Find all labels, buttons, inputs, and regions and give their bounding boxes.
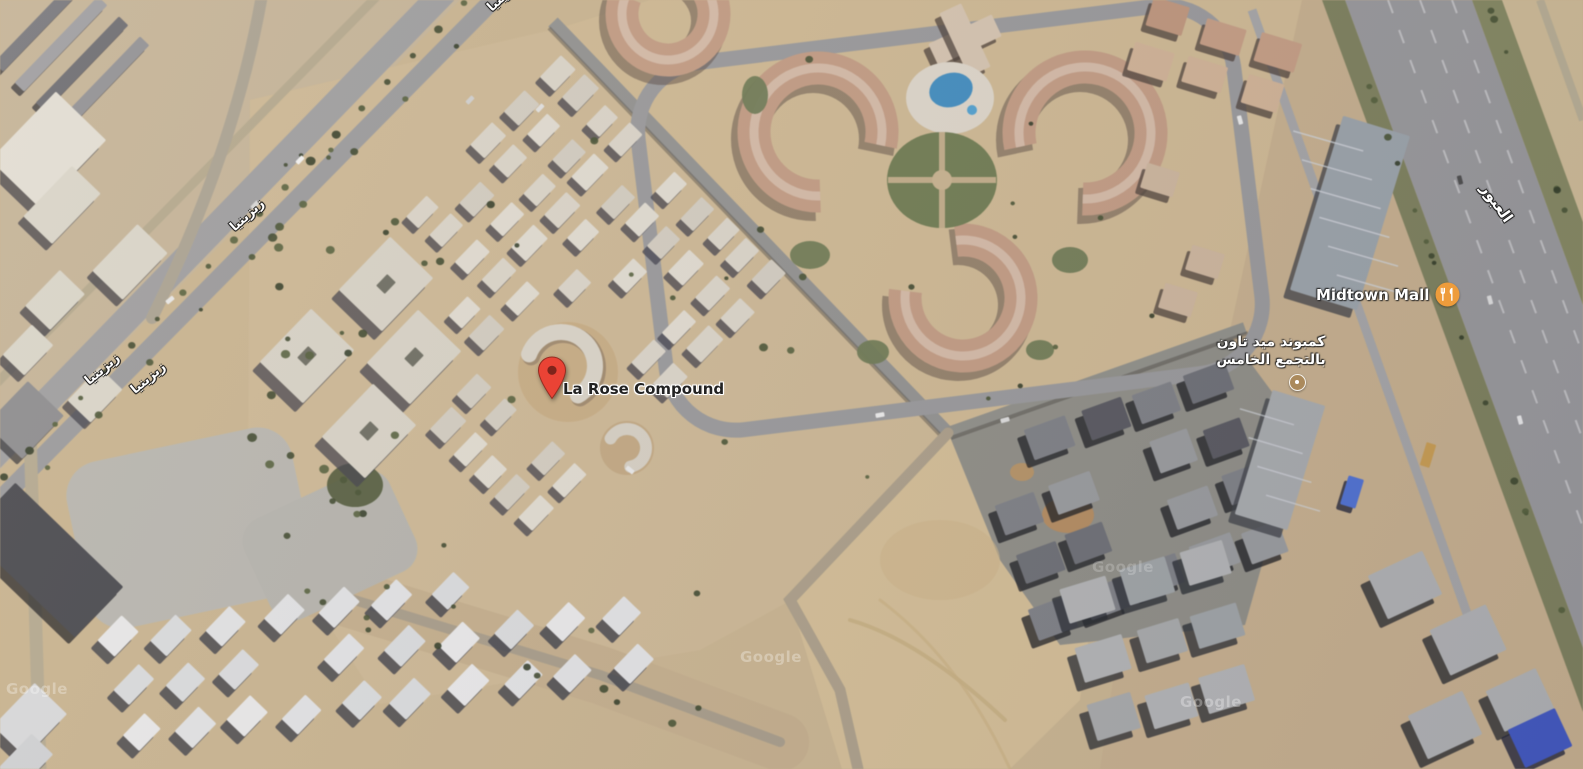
la-rose-pin[interactable] — [537, 356, 567, 400]
poi-midtown-compound[interactable]: كمبوند ميد تاون بالتجمع الخامس — [1188, 333, 1354, 369]
poi-midtown-mall-label[interactable]: Midtown Mall — [1316, 286, 1429, 304]
satellite-imagery — [0, 0, 1583, 769]
poi-midtown-mall[interactable]: Midtown Mall — [1316, 282, 1460, 307]
restaurant-icon[interactable] — [1435, 282, 1460, 307]
satellite-map[interactable]: زيزينيا زيزينيا زيزينيا زيزينيا العبور M… — [0, 0, 1583, 769]
poi-dot-marker[interactable] — [1289, 374, 1306, 391]
poi-midtown-compound-line2[interactable]: بالتجمع الخامس — [1188, 351, 1354, 369]
poi-midtown-compound-line1[interactable]: كمبوند ميد تاون — [1188, 333, 1354, 351]
